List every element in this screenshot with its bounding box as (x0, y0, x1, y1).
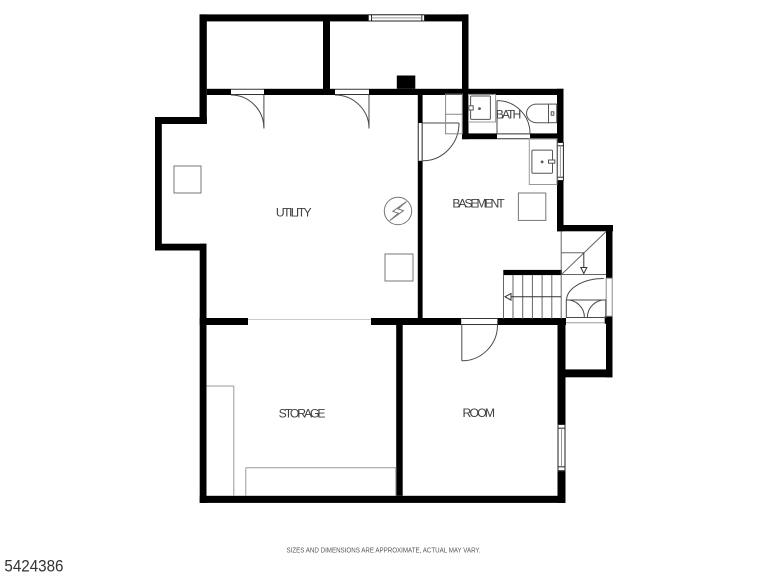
svg-text:ROOM: ROOM (463, 406, 496, 420)
svg-text:BASEMENT: BASEMENT (452, 196, 505, 210)
svg-text:5424386: 5424386 (4, 558, 63, 576)
svg-text:STORAGE: STORAGE (279, 407, 326, 421)
svg-text:SIZES AND DIMENSIONS ARE APPRO: SIZES AND DIMENSIONS ARE APPROXIMATE, AC… (287, 545, 481, 554)
svg-text:BATH: BATH (496, 107, 522, 121)
svg-text:UTILITY: UTILITY (276, 206, 312, 220)
